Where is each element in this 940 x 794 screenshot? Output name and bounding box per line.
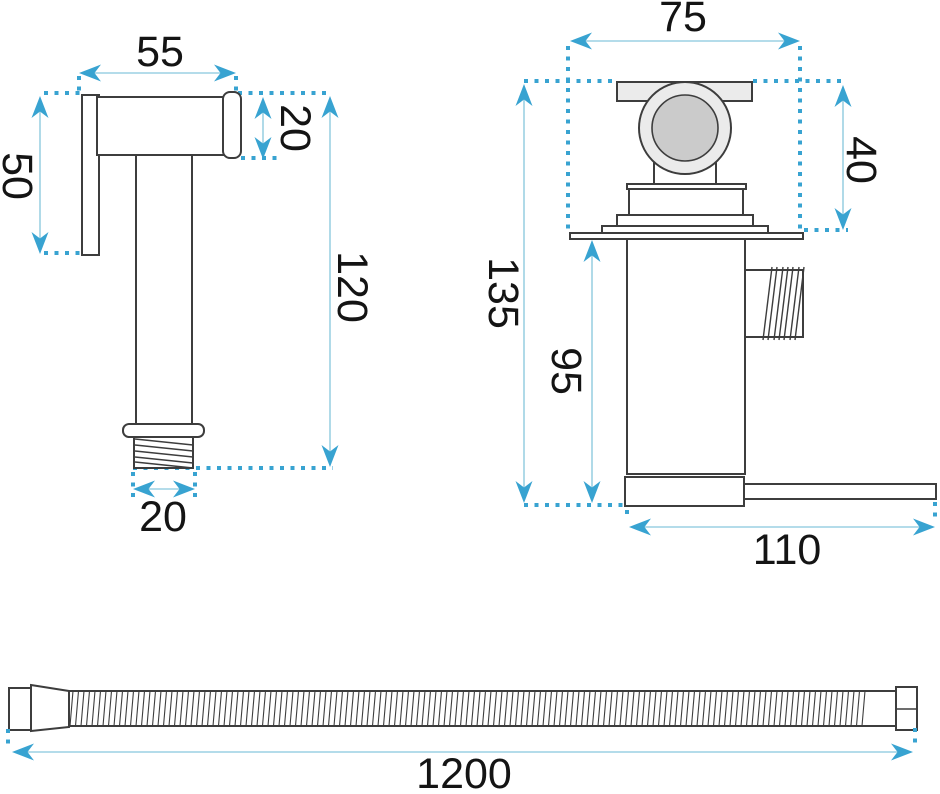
sprayer-collar xyxy=(123,424,204,437)
dimension-label: 50 xyxy=(0,152,41,200)
valve-step-2 xyxy=(629,189,743,215)
dimension-label: 20 xyxy=(271,104,319,152)
dimension-label: 20 xyxy=(139,493,187,541)
sprayer-end-cap xyxy=(223,92,241,158)
dimension-label: 110 xyxy=(753,526,822,574)
valve-body xyxy=(627,239,745,474)
valve-step-3 xyxy=(617,215,753,226)
sprayer-handle xyxy=(136,155,192,425)
dimension-label: 55 xyxy=(136,28,184,76)
dimension-label: 40 xyxy=(837,136,885,184)
drawing-svg: 55 50 20 120 20 xyxy=(0,0,940,794)
dimension-label: 75 xyxy=(659,0,707,41)
hose-nut-left xyxy=(31,685,69,731)
valve-step-4 xyxy=(602,226,768,233)
dimension-label: 120 xyxy=(328,251,376,323)
dimension-label: 135 xyxy=(479,257,527,329)
hose-connector-left xyxy=(9,688,31,730)
valve-lever xyxy=(744,484,936,499)
dim-sprayer-thread-width: 20 xyxy=(133,481,195,542)
dimension-label: 95 xyxy=(542,347,590,395)
hose-drawing xyxy=(9,685,917,731)
technical-drawing-canvas: 55 50 20 120 20 xyxy=(0,0,940,794)
valve-bottom-base xyxy=(625,477,744,506)
dimension-label: 1200 xyxy=(416,750,512,794)
valve-knob-inner xyxy=(652,95,718,161)
sprayer-head xyxy=(97,97,225,155)
hose-corrugation xyxy=(69,691,866,726)
